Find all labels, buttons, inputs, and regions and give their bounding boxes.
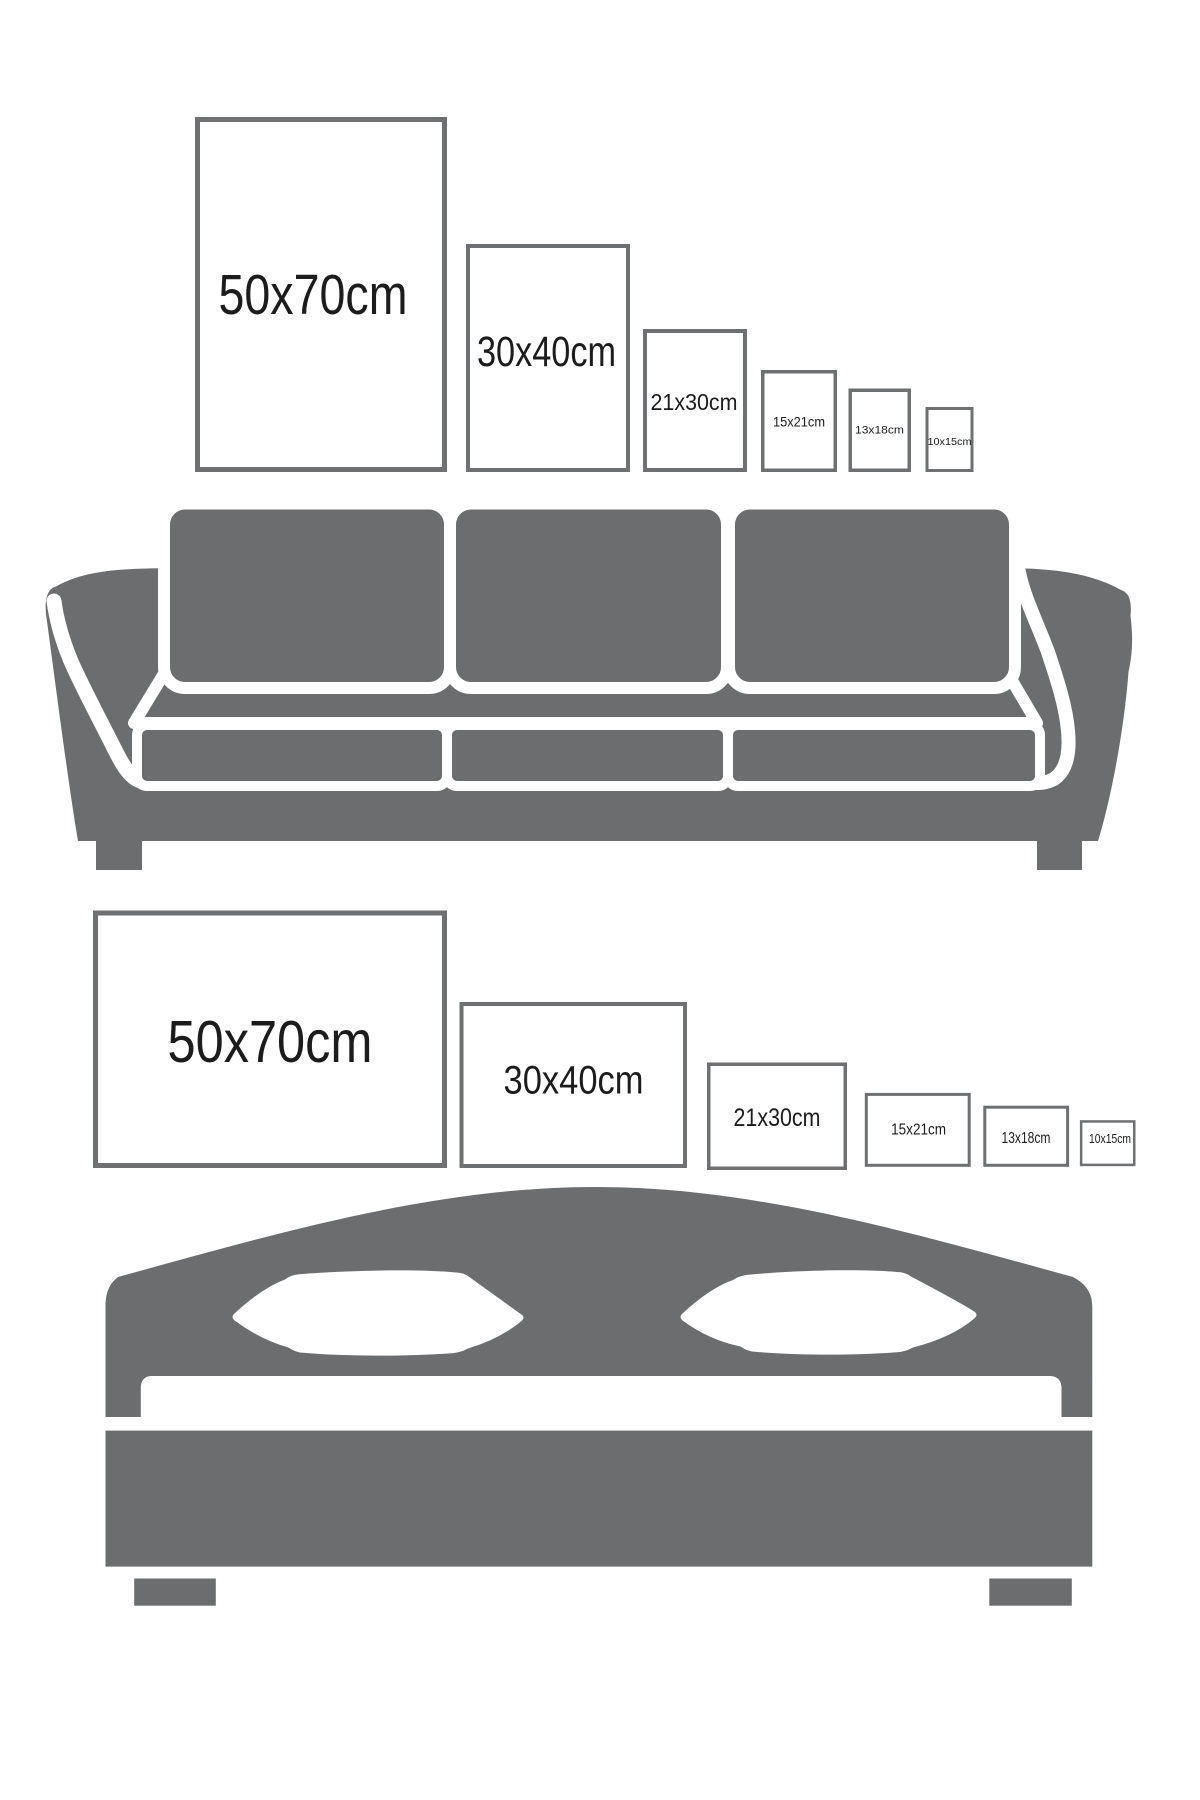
- svg-text:30x40cm: 30x40cm: [504, 1058, 644, 1102]
- svg-text:21x30cm: 21x30cm: [651, 389, 738, 415]
- svg-text:50x70cm: 50x70cm: [219, 263, 408, 326]
- svg-text:15x21cm: 15x21cm: [773, 414, 825, 430]
- svg-text:10x15cm: 10x15cm: [1089, 1132, 1131, 1146]
- svg-text:13x18cm: 13x18cm: [855, 425, 904, 437]
- svg-text:21x30cm: 21x30cm: [734, 1105, 821, 1132]
- svg-text:15x21cm: 15x21cm: [891, 1122, 946, 1139]
- svg-text:13x18cm: 13x18cm: [1002, 1130, 1051, 1147]
- svg-text:30x40cm: 30x40cm: [477, 328, 616, 375]
- svg-text:10x15cm: 10x15cm: [928, 437, 972, 448]
- svg-text:50x70cm: 50x70cm: [168, 1008, 373, 1075]
